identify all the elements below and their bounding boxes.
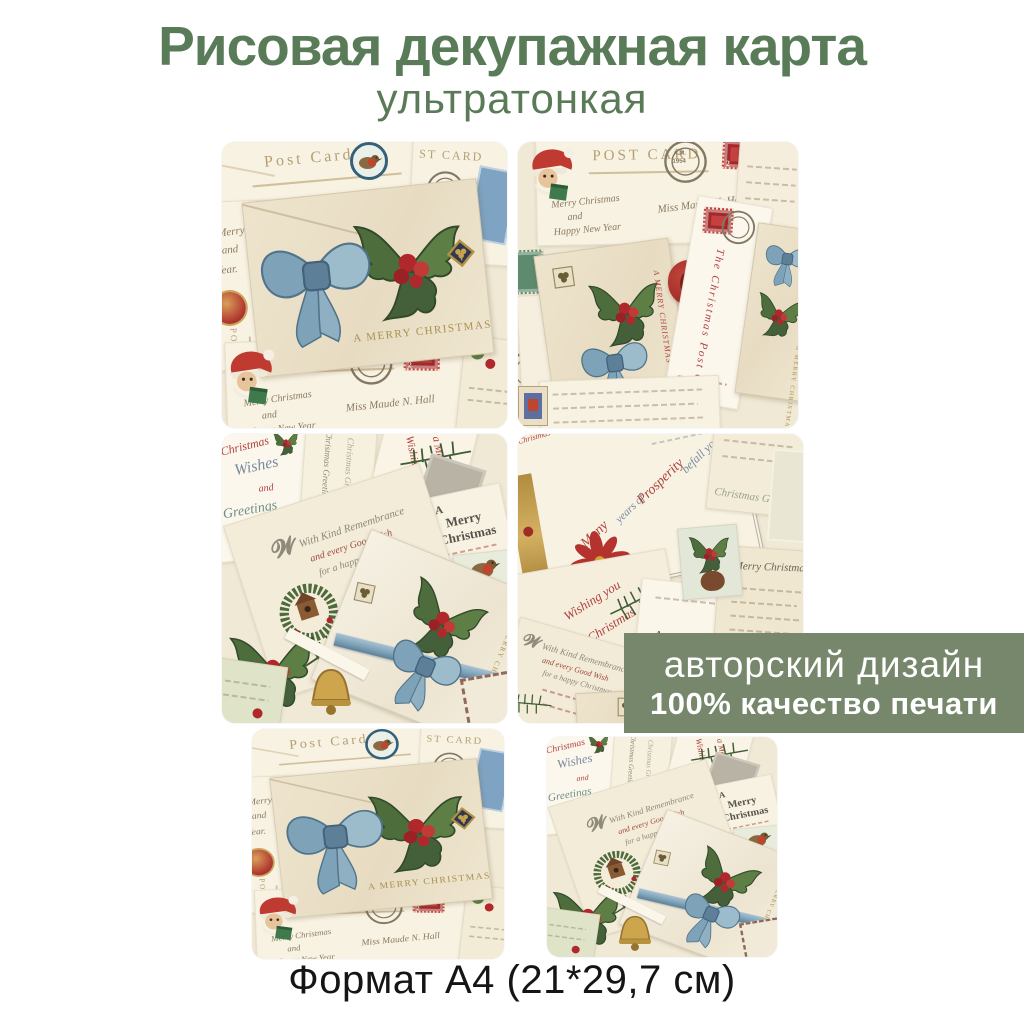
postcard-title: Post Card [263,146,354,172]
handwriting-line [467,399,507,405]
green-card [547,907,600,957]
lace-card-corner [460,670,507,723]
postmark-text: A.M. [673,151,686,157]
round-sticker [222,291,246,324]
collage-envelope-postcards: Post Card ST CARD Merry Christmas and Ye… [222,142,507,428]
card-text: and [258,482,274,495]
postcard-title: ST CARD [426,733,483,748]
pudding-icon [700,570,726,592]
initial-letter: 𝓦 [584,812,610,837]
page-subtitle: ультратонкая [0,78,1024,120]
berry-print-dot [485,358,496,369]
handwriting-line [747,165,797,170]
handwriting: Year. [252,826,266,837]
badge-line-design: авторский дизайн [664,645,984,686]
handwriting-line [553,416,703,423]
holly-icon [747,285,798,344]
clover-stamp-icon [550,264,577,291]
holly-icon [269,434,304,458]
collage-greeting-cards: Christmas Wishes and Greetings Christmas… [222,434,507,723]
product-image: Рисовая декупажная карта ультратонкая Po… [0,0,1024,1024]
blue-bow-icon [752,230,798,294]
sideways-greeting: A MERRY CHRISTMAS [782,345,798,428]
handwriting: and [252,810,267,821]
postcard [539,375,721,428]
ornament-dot [252,708,263,719]
holly-icon [585,737,613,755]
blue-bow-icon [246,200,389,365]
handwriting-line [223,693,269,701]
handwriting-line [470,926,504,931]
handwriting-line [730,615,800,622]
photo-tile-greeting-cards-small: Christmas Wishes and Greetings Christmas… [547,737,777,957]
handwriting: and [261,409,277,422]
pale-card [767,449,803,544]
handwriting-line [745,197,795,202]
bird-icon [370,736,395,752]
photo-tile-postcards-collage: POST CARD A.M. 1954 2 Merry Christmas an… [518,142,798,428]
blue-bow-icon [273,776,400,908]
postmark-year: 1954 [672,159,685,165]
handwriting: and [567,211,583,223]
page-title: Рисовая декупажная карта [0,18,1024,76]
bird-icon [355,151,383,171]
handwriting: Happy New Year [248,420,316,428]
card-text: Merry Christmas [733,560,803,575]
stamp-shield [528,399,538,411]
photo-tile-envelope-collage-small: Post Card ST CARD Merry Christmas and Ye… [252,729,504,959]
bird-sticker [365,729,399,760]
handwriting: and [287,944,301,954]
lace-card-corner [739,916,777,957]
handwriting-line [731,601,797,608]
handwriting: Happy New Year [553,221,621,238]
format-caption: Формат А4 (21*29,7 см) [0,958,1024,1003]
card-text: Merry Christmas [518,434,551,452]
clover-stamp-icon [352,580,378,606]
handwriting-line [549,924,586,930]
handwriting-line [469,935,504,940]
postcard-title: Post Card [289,732,369,753]
handwriting: Miss Maude N. Hall [361,931,441,948]
ornament-dot [571,945,580,954]
header: Рисовая декупажная карта ультратонкая [0,18,1024,120]
clover-stamp-icon [652,848,673,868]
handwriting-line [552,388,702,395]
holly-icon [682,529,736,577]
postmark-icon [717,207,759,249]
green-card [222,657,288,723]
berry-print-dot [484,903,494,912]
initial-letter: 𝓦 [268,532,300,565]
handwriting-line [469,387,507,393]
small-stamp [518,386,548,426]
clover-emblem-icon [443,236,478,271]
photo-tile-envelope-collage: Post Card ST CARD Merry Christmas and Ye… [222,142,507,428]
handwriting-line [225,679,271,687]
quality-badge: авторский дизайн 100% качество печати [624,633,1024,733]
handwriting: Year. [222,263,238,277]
santa-sticker-icon [252,891,305,944]
handwriting-line [724,439,794,448]
handwriting-line [548,934,585,940]
santa-sticker-icon [518,142,582,206]
handwriting: and [222,243,239,257]
gem-dot [522,526,534,538]
card-text: and [576,774,589,784]
handwriting: Miss Maude N. Hall [345,393,435,414]
round-sticker [252,849,274,876]
badge-line-quality: 100% качество печати [650,686,998,722]
greeting-card [677,524,743,601]
photo-tile-greeting-cards: Christmas Wishes and Greetings Christmas… [222,434,507,723]
clover-emblem-icon [448,804,479,832]
bird-sticker [350,142,388,180]
handwriting-line [746,181,796,186]
collage-postcards-bows: POST CARD A.M. 1954 2 Merry Christmas an… [518,142,798,428]
postcard-title: ST CARD [419,147,484,165]
handwriting-line [553,403,698,410]
santa-sticker-icon [222,344,282,410]
stamp-value: 2 [726,159,730,168]
